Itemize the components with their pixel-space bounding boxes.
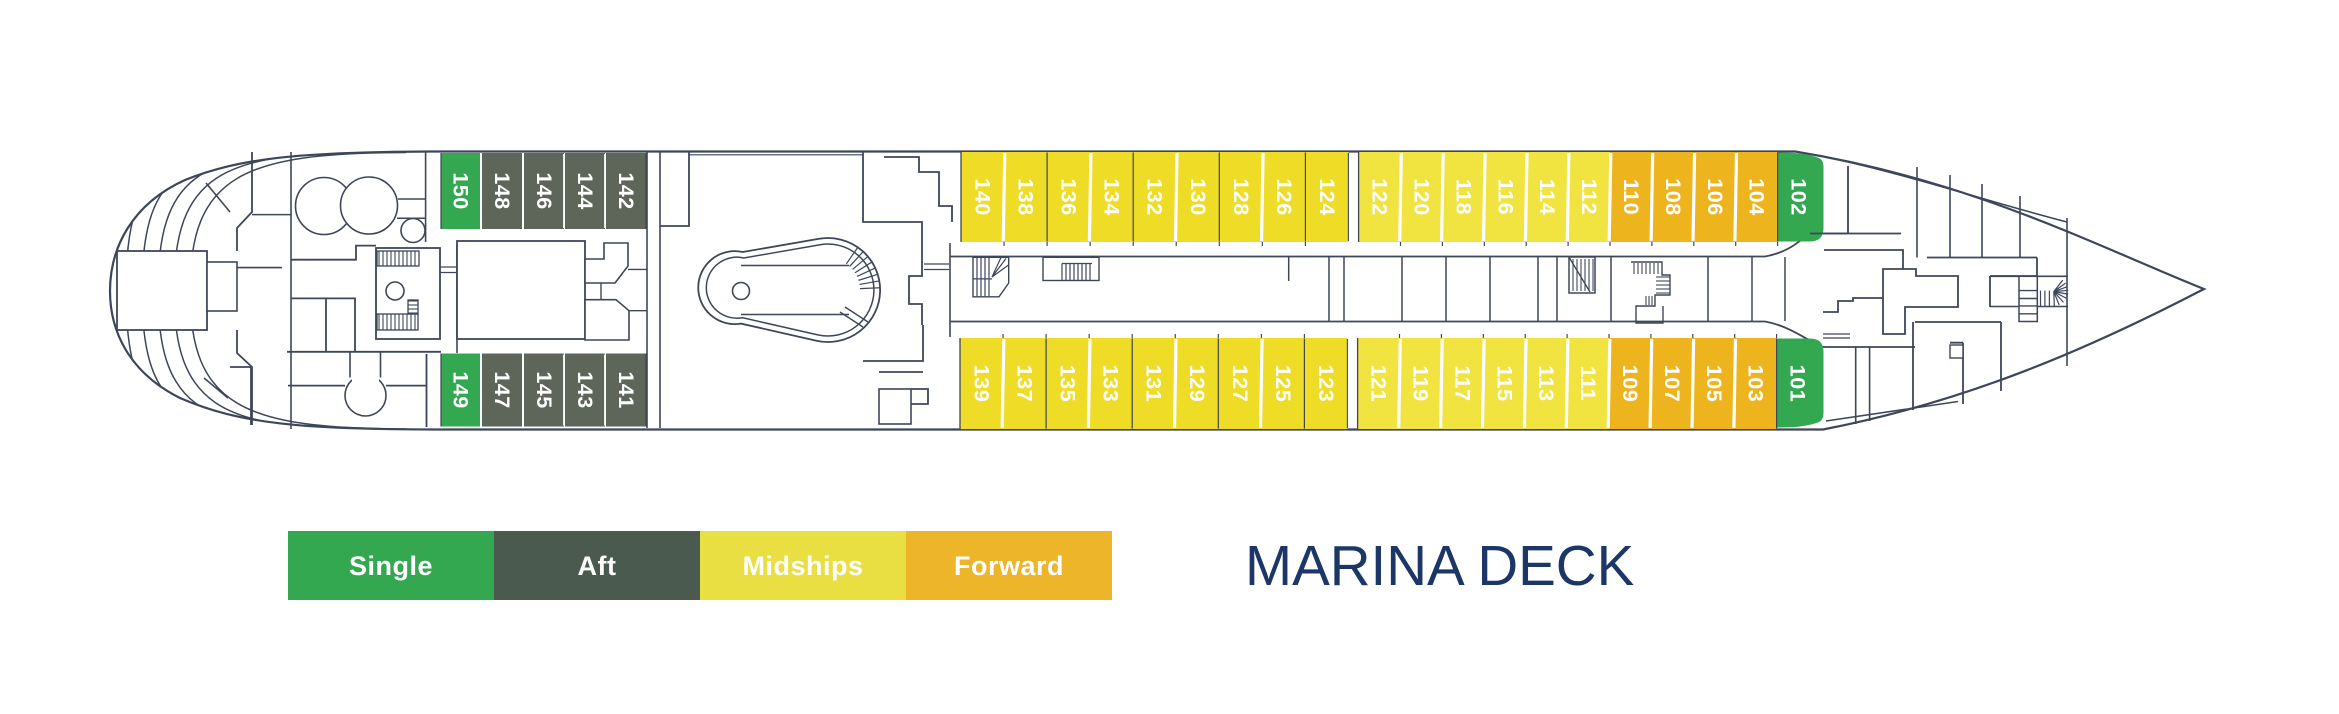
- svg-text:125: 125: [1271, 365, 1295, 402]
- svg-text:109: 109: [1618, 365, 1642, 402]
- svg-text:147: 147: [490, 371, 514, 408]
- svg-text:102: 102: [1787, 178, 1811, 215]
- svg-text:131: 131: [1142, 365, 1166, 402]
- svg-text:Aft: Aft: [578, 551, 617, 581]
- svg-text:150: 150: [449, 172, 473, 209]
- svg-text:136: 136: [1057, 178, 1081, 215]
- svg-text:146: 146: [532, 172, 556, 209]
- svg-text:137: 137: [1013, 365, 1037, 402]
- svg-text:MARINA DECK: MARINA DECK: [1245, 534, 1635, 597]
- svg-text:130: 130: [1186, 178, 1210, 215]
- svg-text:134: 134: [1100, 178, 1124, 215]
- svg-text:118: 118: [1451, 179, 1475, 215]
- svg-text:106: 106: [1703, 178, 1727, 215]
- svg-text:133: 133: [1099, 365, 1123, 402]
- svg-text:104: 104: [1745, 178, 1769, 215]
- svg-text:122: 122: [1368, 178, 1392, 215]
- svg-text:103: 103: [1744, 365, 1768, 402]
- svg-text:Forward: Forward: [954, 551, 1064, 581]
- svg-text:142: 142: [614, 172, 638, 209]
- svg-text:149: 149: [449, 371, 473, 408]
- svg-text:128: 128: [1229, 178, 1253, 215]
- svg-text:119: 119: [1408, 365, 1432, 401]
- svg-text:108: 108: [1661, 178, 1685, 215]
- svg-text:143: 143: [573, 371, 597, 408]
- svg-text:110: 110: [1619, 179, 1643, 215]
- svg-text:129: 129: [1185, 365, 1209, 402]
- svg-text:112: 112: [1577, 179, 1601, 215]
- svg-text:132: 132: [1143, 178, 1167, 215]
- svg-text:138: 138: [1014, 178, 1038, 215]
- svg-text:121: 121: [1367, 365, 1391, 402]
- svg-text:148: 148: [490, 172, 514, 209]
- svg-text:116: 116: [1493, 179, 1517, 215]
- svg-text:144: 144: [573, 172, 597, 209]
- svg-text:114: 114: [1535, 179, 1559, 215]
- svg-text:111: 111: [1576, 366, 1600, 401]
- svg-text:140: 140: [971, 178, 995, 215]
- svg-text:141: 141: [614, 371, 638, 408]
- svg-text:126: 126: [1272, 178, 1296, 215]
- svg-text:Midships: Midships: [742, 551, 863, 581]
- svg-text:Single: Single: [349, 551, 433, 581]
- svg-text:117: 117: [1450, 365, 1474, 401]
- svg-text:139: 139: [970, 365, 994, 402]
- svg-text:135: 135: [1056, 365, 1080, 402]
- svg-text:107: 107: [1660, 365, 1684, 402]
- svg-text:101: 101: [1786, 365, 1810, 402]
- svg-text:105: 105: [1702, 365, 1726, 402]
- svg-text:145: 145: [532, 371, 556, 408]
- svg-text:115: 115: [1492, 365, 1516, 401]
- svg-text:127: 127: [1228, 365, 1252, 402]
- svg-text:124: 124: [1315, 178, 1339, 215]
- svg-text:113: 113: [1534, 365, 1558, 401]
- svg-text:120: 120: [1409, 178, 1433, 215]
- svg-text:123: 123: [1314, 365, 1338, 402]
